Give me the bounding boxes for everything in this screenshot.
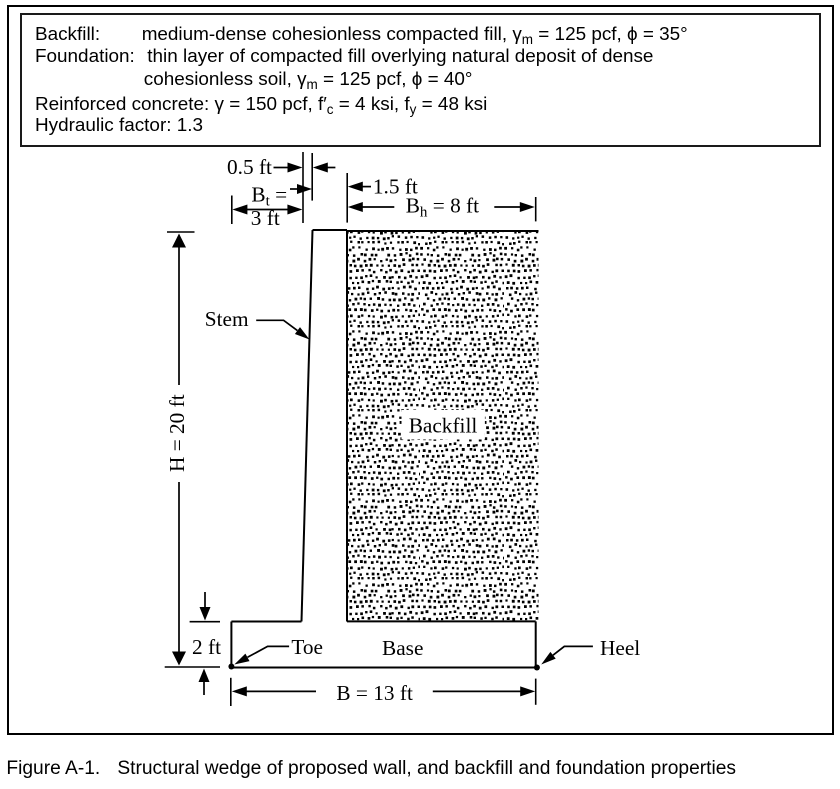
- svg-text:Toe: Toe: [291, 635, 323, 659]
- svg-text:2 ft: 2 ft: [192, 635, 221, 659]
- svg-text:H = 20 ft: H = 20 ft: [165, 394, 189, 472]
- svg-text:Stem: Stem: [205, 307, 249, 331]
- svg-text:Backfill: Backfill: [409, 413, 478, 437]
- svg-text:3 ft: 3 ft: [251, 206, 280, 230]
- svg-text:Heel: Heel: [600, 636, 640, 660]
- svg-text:Bh = 8 ft: Bh = 8 ft: [406, 193, 479, 220]
- svg-text:B = 13 ft: B = 13 ft: [336, 681, 413, 705]
- svg-text:0.5 ft: 0.5 ft: [227, 155, 272, 179]
- svg-text:Base: Base: [382, 636, 423, 660]
